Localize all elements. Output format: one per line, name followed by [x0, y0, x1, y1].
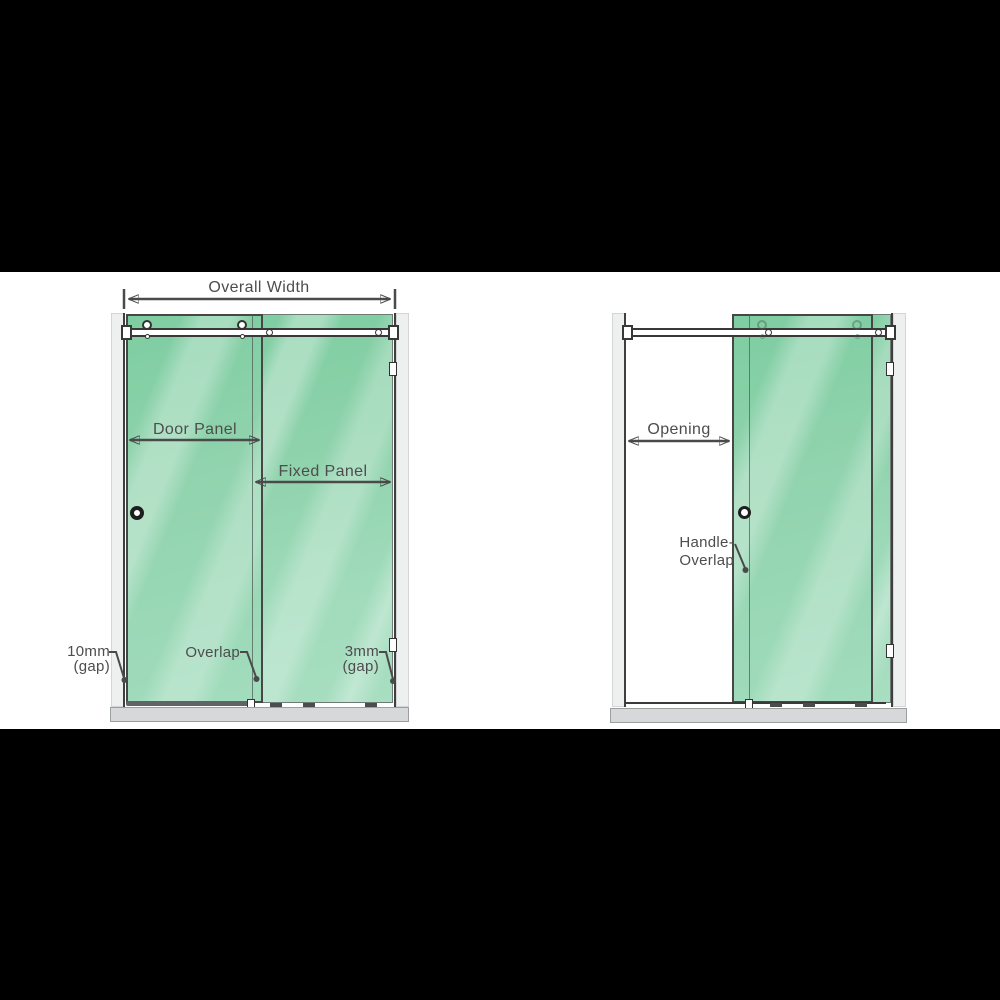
letterbox-top — [0, 0, 1000, 272]
handle-overlap-line2: Overlap — [641, 552, 734, 570]
overlap-leader — [240, 652, 260, 682]
gap-3mm-label: 3mm (gap) — [309, 644, 379, 674]
door-panel-label: Door Panel — [115, 421, 275, 438]
overall-width-label: Overall Width — [159, 279, 359, 296]
gap-3mm-leader — [379, 652, 396, 684]
opening-label: Opening — [599, 421, 759, 438]
dimension-annotations — [0, 272, 1000, 729]
handle-overlap-leader — [735, 544, 749, 573]
gap-10mm-label: 10mm (gap) — [40, 644, 110, 674]
diagram-stage: Overall Width Door Panel Fixed Panel Ope… — [0, 0, 1000, 1000]
letterbox-bottom — [0, 729, 1000, 1000]
gap-3mm-line2: (gap) — [309, 659, 379, 674]
gap-10mm-line1: 10mm — [40, 644, 110, 659]
handle-overlap-line1: Handle- — [641, 534, 734, 552]
handle-overlap-label: Handle- Overlap — [641, 534, 734, 570]
overlap-label: Overlap — [151, 645, 240, 660]
gap-10mm-leader — [109, 652, 128, 683]
fixed-panel-label: Fixed Panel — [243, 463, 403, 480]
gap-3mm-line1: 3mm — [309, 644, 379, 659]
content-area: Overall Width Door Panel Fixed Panel Ope… — [0, 272, 1000, 729]
gap-10mm-line2: (gap) — [40, 659, 110, 674]
